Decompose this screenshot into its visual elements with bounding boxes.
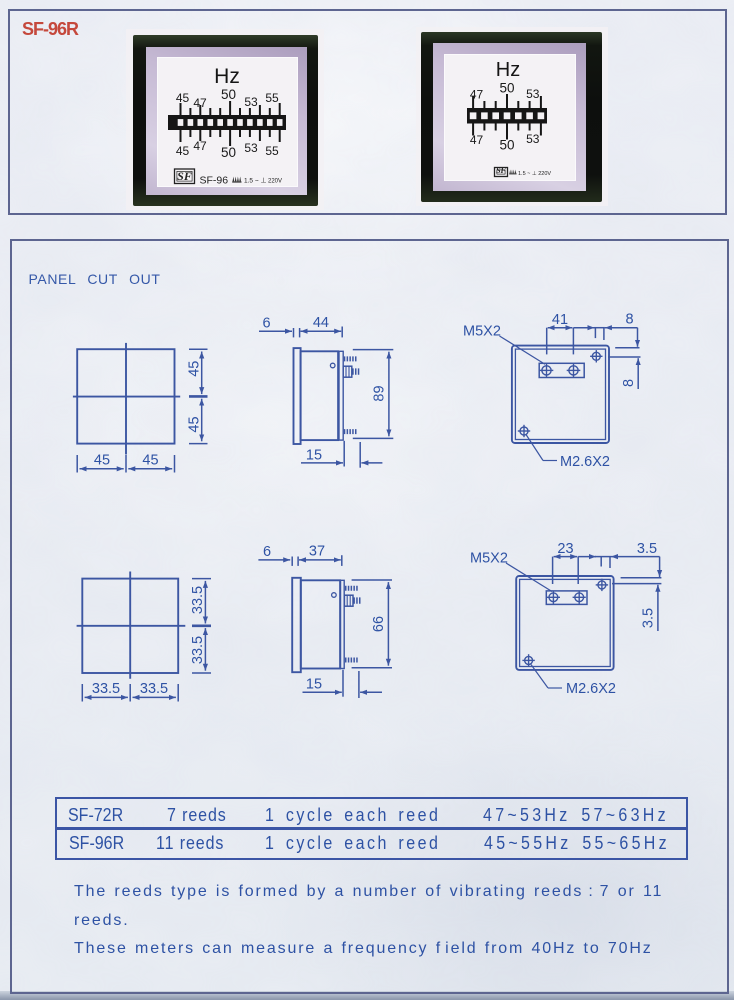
svg-text:8: 8 <box>621 379 637 387</box>
svg-text:45: 45 <box>142 452 158 468</box>
svg-text:33.5: 33.5 <box>92 681 120 697</box>
svg-text:89: 89 <box>372 385 388 401</box>
svg-text:15: 15 <box>306 447 322 463</box>
svg-text:8: 8 <box>625 312 633 328</box>
svg-text:15: 15 <box>306 677 322 693</box>
svg-text:45: 45 <box>187 361 203 377</box>
svg-text:45: 45 <box>94 452 110 468</box>
svg-text:3.5: 3.5 <box>637 541 657 557</box>
svg-text:M2.6X2: M2.6X2 <box>566 681 616 697</box>
svg-text:M5X2: M5X2 <box>470 551 508 567</box>
svg-text:66: 66 <box>371 616 387 632</box>
svg-text:M2.6X2: M2.6X2 <box>560 454 610 470</box>
svg-text:6: 6 <box>263 544 271 560</box>
svg-text:33.5: 33.5 <box>190 586 206 614</box>
svg-text:45: 45 <box>187 416 203 432</box>
svg-text:41: 41 <box>552 312 568 328</box>
svg-text:6: 6 <box>262 316 270 332</box>
svg-text:M5X2: M5X2 <box>463 324 501 340</box>
svg-text:33.5: 33.5 <box>140 681 168 697</box>
svg-text:44: 44 <box>313 315 329 331</box>
svg-text:23: 23 <box>557 541 573 557</box>
svg-text:3.5: 3.5 <box>641 608 657 628</box>
svg-text:33.5: 33.5 <box>190 636 206 664</box>
svg-text:37: 37 <box>309 544 325 560</box>
